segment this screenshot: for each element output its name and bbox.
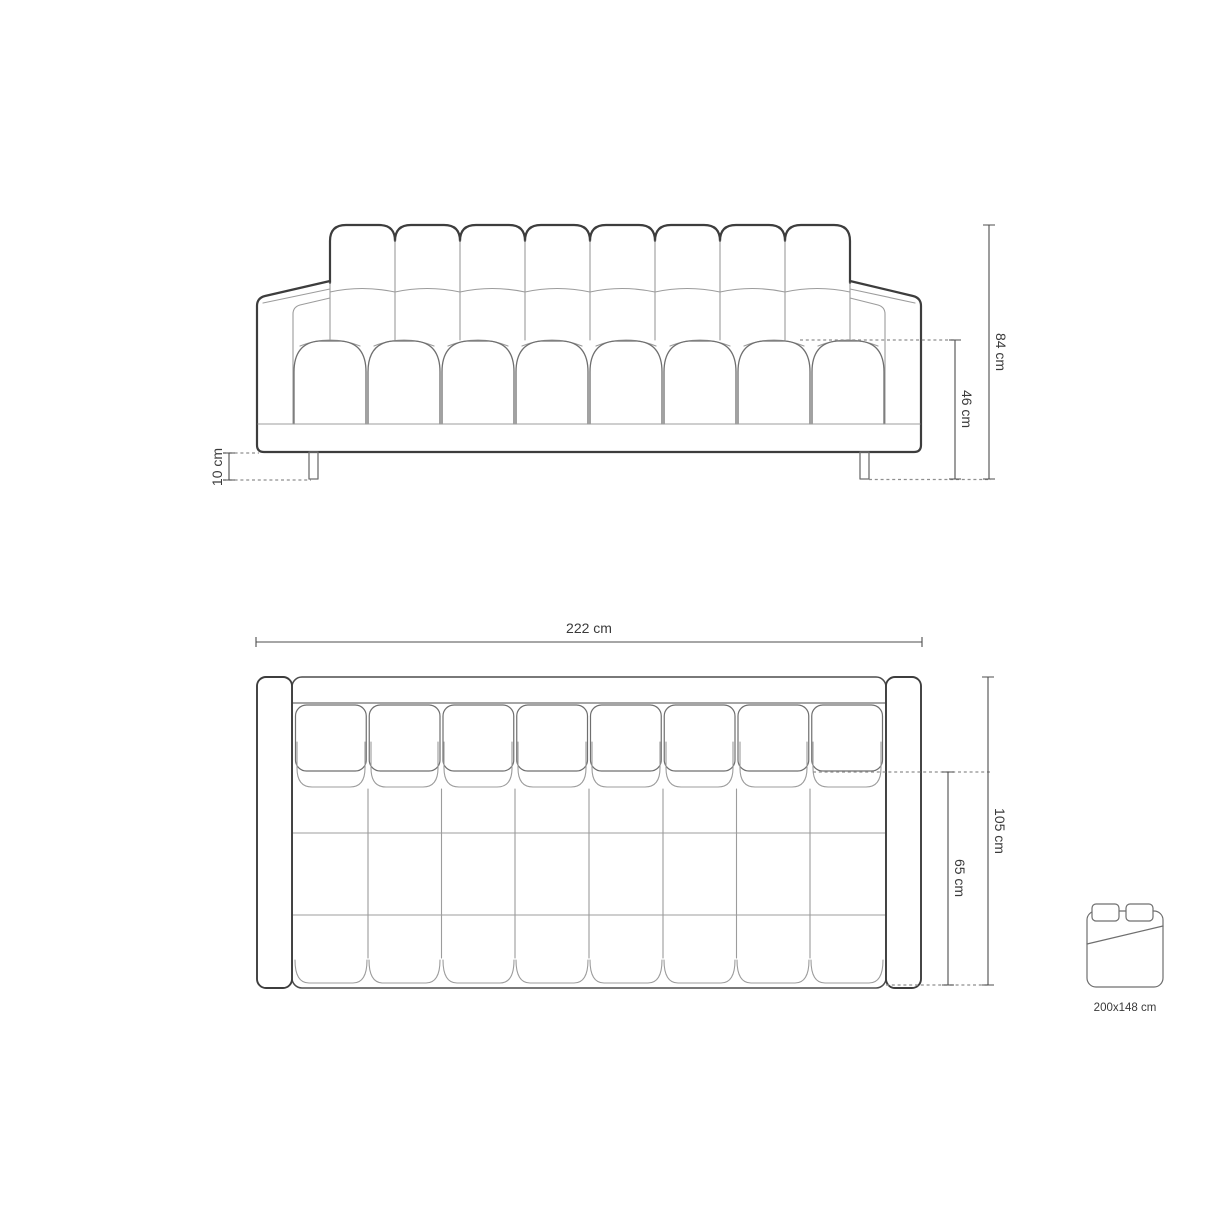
dim-total-height: 84 cm: [983, 225, 1009, 479]
plan-back-cushion: [443, 705, 514, 771]
bed-icon: [1087, 904, 1163, 987]
bed-pillow-right: [1126, 904, 1153, 921]
front-seat-cushions: [294, 341, 884, 424]
front-legs: [309, 452, 869, 479]
plan-left-arm: [257, 677, 292, 988]
dim-total-depth-label: 105 cm: [992, 808, 1008, 854]
bed-pillow-left: [1092, 904, 1119, 921]
plan-back-cushion: [517, 705, 588, 771]
dim-total-depth: 105 cm: [982, 677, 1008, 985]
plan-back-cushion: [664, 705, 735, 771]
front-outer-silhouette: [257, 281, 921, 452]
front-view: [257, 225, 921, 479]
plan-right-arm: [886, 677, 921, 988]
sleeping-area: 200x148 cm: [1087, 904, 1163, 1014]
dim-total-height-label: 84 cm: [993, 333, 1009, 371]
front-left-leg: [309, 452, 318, 479]
plan-back-cushion: [812, 705, 883, 771]
sofa-dimension-diagram: 84 cm 46 cm 10 cm: [0, 0, 1214, 1214]
sleeping-area-size-label: 200x148 cm: [1094, 1002, 1157, 1014]
plan-back-cushion: [591, 705, 662, 771]
top-view: [257, 677, 921, 988]
front-seat-deck-arcs: [300, 340, 878, 346]
dim-leg-height-label: 10 cm: [209, 448, 225, 486]
dim-total-width-line: [256, 637, 922, 647]
dim-seat-depth-label: 65 cm: [952, 859, 968, 897]
front-right-arm-inner: [850, 289, 915, 424]
dim-total-width: 222 cm: [256, 620, 922, 647]
plan-back-cushion: [296, 705, 367, 771]
dim-seat-depth: 65 cm: [942, 772, 968, 985]
dim-total-width-label: 222 cm: [566, 620, 612, 636]
dim-seat-height-label: 46 cm: [959, 390, 975, 428]
plan-back-cushion: [369, 705, 440, 771]
dim-leg-height: 10 cm: [209, 448, 235, 486]
diagram-canvas: 84 cm 46 cm 10 cm: [0, 0, 1214, 1214]
front-right-leg: [860, 452, 869, 479]
front-back-channel-separators: [330, 241, 850, 340]
dim-seat-height: 46 cm: [949, 340, 975, 479]
bed-outline: [1087, 911, 1163, 987]
plan-back-cushion: [738, 705, 809, 771]
